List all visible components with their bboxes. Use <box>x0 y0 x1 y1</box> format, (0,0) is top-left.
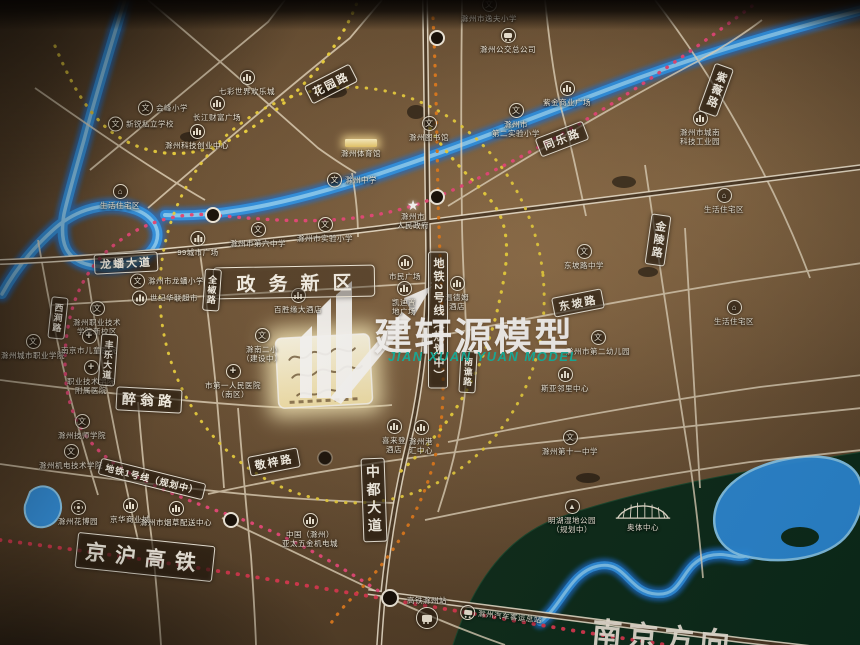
map-poi: 紫金商业广场 <box>543 81 591 107</box>
map-poi: 文滁州市第六中学 <box>230 222 286 248</box>
map-poi: ▲明湖湿地公园（规划中） <box>548 499 596 534</box>
map-board: 政务新区 文会峰小学文新锐私立学校七彩世界欢乐城长江财富广场滁州科技创业中心⌂生… <box>0 0 860 645</box>
road-label: 中都大道 <box>361 458 388 543</box>
poi-label: 滁州市龙蟠小学 <box>148 277 204 286</box>
poi-label: 长江财富广场 <box>193 113 241 122</box>
poi-label: 滁州市城南科技工业园 <box>680 128 720 146</box>
map-poi: 文滁州市实验小学 <box>297 217 353 243</box>
hospital-icon: + <box>84 360 99 375</box>
school-icon: 文 <box>422 116 437 131</box>
poi-label: 滁州市第六中学 <box>230 239 286 248</box>
map-poi: ★滁州市人民政府 <box>397 198 429 230</box>
map-poi: 滁州花博园 <box>58 500 98 526</box>
poi-label: 世纪华联超市 <box>150 294 198 303</box>
map-poi: 斯亚邻里中心 <box>541 367 589 393</box>
poi-label: 明湖湿地公园（规划中） <box>548 516 596 534</box>
lake-island <box>781 527 819 547</box>
poi-label: 滁州机电技术学院 <box>39 461 103 470</box>
map-poi: 文会峰小学 <box>138 101 188 116</box>
poi-label: 滁州体育馆 <box>341 149 381 158</box>
district-zone-label: 政务新区 <box>213 265 376 300</box>
hospital-icon: + <box>226 364 241 379</box>
bus-icon <box>501 28 516 43</box>
residential-icon: ⌂ <box>717 188 732 203</box>
map-poi: 温德姆酒店 <box>445 276 469 311</box>
school-icon: 文 <box>563 430 578 445</box>
building-icon <box>169 501 184 516</box>
school-icon: 文 <box>577 244 592 259</box>
building-icon <box>132 291 147 306</box>
map-poi: 滁州体育馆 <box>341 139 381 158</box>
building-icon <box>123 498 138 513</box>
map-poi: 文滁州第十一中学 <box>542 430 598 456</box>
poi-label: 紫金商业广场 <box>543 98 591 107</box>
building-icon <box>190 124 205 139</box>
poi-label: 市民广场 <box>389 272 421 281</box>
lake <box>714 457 860 561</box>
map-poi: 高铁滁州站 <box>407 596 447 629</box>
poi-label: 滁州中学 <box>345 176 377 185</box>
map-poi: 文滁州市逸夫小学 <box>461 0 517 23</box>
poi-label: 百胜缘大酒店 <box>274 305 322 314</box>
poi-label: 喜来登酒店 <box>382 436 406 454</box>
map-poi: 滁州港汇中心 <box>409 420 433 455</box>
map-poi: 文滁州市第二实验小学 <box>492 103 540 138</box>
map-poi: 文滁州图书馆 <box>409 116 449 142</box>
map-poi: 凯迪置地广场 <box>392 281 416 316</box>
building-icon <box>558 367 573 382</box>
school-icon: 文 <box>138 101 153 116</box>
poi-label: 市第一人民医院（南区） <box>205 381 261 399</box>
school-icon: 文 <box>26 334 41 349</box>
residential-icon: ⌂ <box>727 300 742 315</box>
poi-label: 滁州城市职业学院 <box>1 351 65 360</box>
map-poi: 滁州市烟草配送中心 <box>140 501 212 527</box>
poi-label: 中国（滁州）亚太五金机电城 <box>282 530 338 548</box>
map-poi: ⌂生活住宅区 <box>100 184 140 210</box>
road-label: 南谯路 <box>458 351 477 394</box>
school-icon: 文 <box>591 330 606 345</box>
train-station-icon <box>416 607 438 629</box>
map-poi: 滁州公交总公司 <box>480 28 536 54</box>
road-label: 醉翁路 <box>115 386 182 413</box>
bus-icon <box>459 604 475 620</box>
school-icon: 文 <box>255 328 270 343</box>
building-icon <box>387 419 402 434</box>
poi-label: 滁南二小（建设中） <box>242 345 282 363</box>
school-icon: 文 <box>130 274 145 289</box>
school-icon: 文 <box>318 217 333 232</box>
poi-label: 滁州科技创业中心 <box>165 141 229 150</box>
school-icon: 文 <box>251 222 266 237</box>
poi-label: 滁州港汇中心 <box>409 437 433 455</box>
poi-label: 高铁滁州站 <box>407 596 447 605</box>
poi-label: 奥体中心 <box>627 523 659 532</box>
building-icon <box>397 281 412 296</box>
map-poi: 文滁州市龙蟠小学 <box>130 274 204 289</box>
small-lake <box>25 486 61 527</box>
school-icon: 文 <box>327 173 342 188</box>
poi-label: 滁州市逸夫小学 <box>461 14 517 23</box>
map-poi: 文滁南二小（建设中） <box>242 328 282 363</box>
map-poi: 文滁州技师学院 <box>58 414 106 440</box>
road-label: 丰乐大道 <box>98 333 119 386</box>
school-icon: 文 <box>509 103 524 118</box>
stadium-icon <box>614 498 672 522</box>
poi-label: 斯亚邻里中心 <box>541 384 589 393</box>
building-icon <box>560 81 575 96</box>
poi-label: 滁州第十一中学 <box>542 447 598 456</box>
poi-label: 滁州市烟草配送中心 <box>140 518 212 527</box>
school-icon: 文 <box>482 0 497 12</box>
poi-label: 东坡路中学 <box>564 261 604 270</box>
building-icon <box>210 96 225 111</box>
building-icon <box>191 231 206 246</box>
map-poi: ⌂生活住宅区 <box>704 188 744 214</box>
building-icon <box>414 420 429 435</box>
poi-label: 会峰小学 <box>156 104 188 113</box>
map-poi: +市第一人民医院（南区） <box>205 364 261 399</box>
building-icon <box>240 70 255 85</box>
map-poi: 99城市广场 <box>177 231 218 257</box>
map-poi: 长江财富广场 <box>193 96 241 122</box>
map-poi: 七彩世界欢乐城 <box>219 70 275 96</box>
map-poi: 文滁州中学 <box>327 173 377 188</box>
parcel-marker-dot <box>318 451 332 465</box>
poi-label: 温德姆酒店 <box>445 293 469 311</box>
school-icon: 文 <box>90 301 105 316</box>
poi-label: 滁州市第二实验小学 <box>492 120 540 138</box>
poi-label: 99城市广场 <box>177 248 218 257</box>
school-icon: 文 <box>108 117 123 132</box>
poi-label: 生活住宅区 <box>100 201 140 210</box>
poi-label: 滁州图书馆 <box>409 133 449 142</box>
poi-label: 生活住宅区 <box>714 317 754 326</box>
map-poi: 文滁州机电技术学院 <box>39 444 103 470</box>
map-poi: 文东坡路中学 <box>564 244 604 270</box>
road-label: 龙蟠大道 <box>94 251 159 274</box>
school-icon: 文 <box>75 414 90 429</box>
building-icon <box>450 276 465 291</box>
map-poi: 奥体中心 <box>614 498 672 532</box>
poi-label: 滁州市第二幼儿园 <box>566 347 630 356</box>
map-poi: ⌂生活住宅区 <box>714 300 754 326</box>
poi-label: 滁州公交总公司 <box>480 45 536 54</box>
map-poi: 喜来登酒店 <box>382 419 406 454</box>
hospital-icon: + <box>82 329 97 344</box>
poi-label: 滁州技师学院 <box>58 431 106 440</box>
poi-label: 滁州市人民政府 <box>397 212 429 230</box>
map-poi: 滁州科技创业中心 <box>165 124 229 150</box>
residential-icon: ⌂ <box>113 184 128 199</box>
building-icon <box>398 255 413 270</box>
building-icon <box>303 513 318 528</box>
poi-label: 七彩世界欢乐城 <box>219 87 275 96</box>
flower-icon <box>71 500 86 515</box>
road-label: 地铁2号线（规划中） <box>428 251 448 388</box>
government-star-icon: ★ <box>407 198 420 212</box>
road-label: 全椒路 <box>202 268 222 311</box>
school-icon: 文 <box>64 444 79 459</box>
map-poi: 文滁州市第二幼儿园 <box>566 330 630 356</box>
map-poi: 中国（滁州）亚太五金机电城 <box>282 513 338 548</box>
map-poi: 世纪华联超市 <box>132 291 198 306</box>
park-icon: ▲ <box>565 499 580 514</box>
poi-label: 滁州花博园 <box>58 517 98 526</box>
stadium-glow-icon <box>345 139 377 147</box>
poi-label: 滁州市实验小学 <box>297 234 353 243</box>
poi-label: 生活住宅区 <box>704 205 744 214</box>
poi-label: 凯迪置地广场 <box>392 298 416 316</box>
map-poi: 市民广场 <box>389 255 421 281</box>
